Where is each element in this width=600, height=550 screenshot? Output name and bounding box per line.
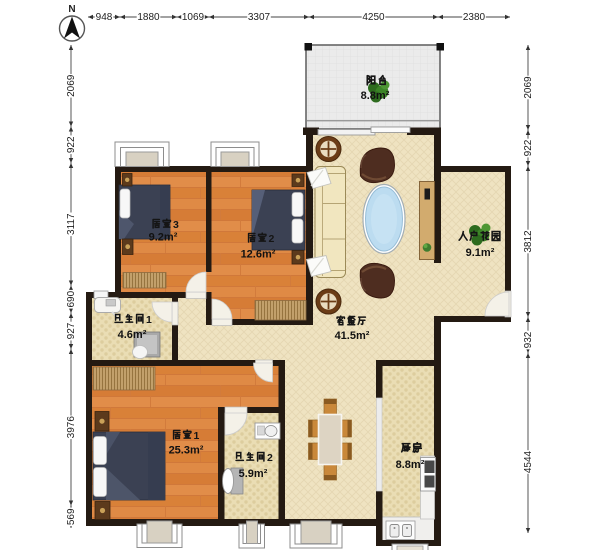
svg-text:2069: 2069 (66, 74, 77, 97)
svg-text:922: 922 (66, 136, 77, 153)
svg-text:927: 927 (66, 322, 77, 339)
svg-text:3976: 3976 (66, 416, 77, 439)
svg-text:3307: 3307 (248, 12, 271, 23)
svg-text:8.8m²: 8.8m² (361, 90, 390, 102)
svg-text:9.1m²: 9.1m² (466, 247, 495, 259)
svg-text:569: 569 (66, 508, 77, 525)
svg-text:1069: 1069 (182, 12, 205, 23)
svg-text:1: 1 (194, 430, 200, 442)
svg-text:N: N (68, 4, 75, 15)
svg-text:5.9m²: 5.9m² (239, 468, 268, 480)
svg-text:2: 2 (267, 452, 273, 464)
svg-text:12.6m²: 12.6m² (241, 249, 276, 261)
svg-text:3: 3 (173, 219, 179, 231)
svg-text:948: 948 (96, 12, 113, 23)
svg-text:690: 690 (66, 290, 77, 307)
svg-text:4544: 4544 (523, 450, 534, 473)
svg-text:932: 932 (523, 331, 534, 348)
svg-text:9.2m²: 9.2m² (149, 232, 178, 244)
svg-text:41.5m²: 41.5m² (335, 330, 370, 342)
svg-text:8.8m²: 8.8m² (396, 459, 425, 471)
svg-text:2: 2 (269, 233, 275, 245)
svg-text:3117: 3117 (66, 213, 77, 235)
svg-text:3812: 3812 (523, 230, 534, 253)
svg-text:4.6m²: 4.6m² (118, 329, 147, 341)
svg-text:1880: 1880 (137, 12, 160, 23)
svg-text:4250: 4250 (362, 12, 385, 23)
svg-text:2380: 2380 (463, 12, 486, 23)
svg-text:922: 922 (523, 139, 534, 156)
svg-text:25.3m²: 25.3m² (169, 445, 204, 457)
svg-text:2069: 2069 (523, 76, 534, 99)
svg-text:1: 1 (146, 314, 152, 326)
